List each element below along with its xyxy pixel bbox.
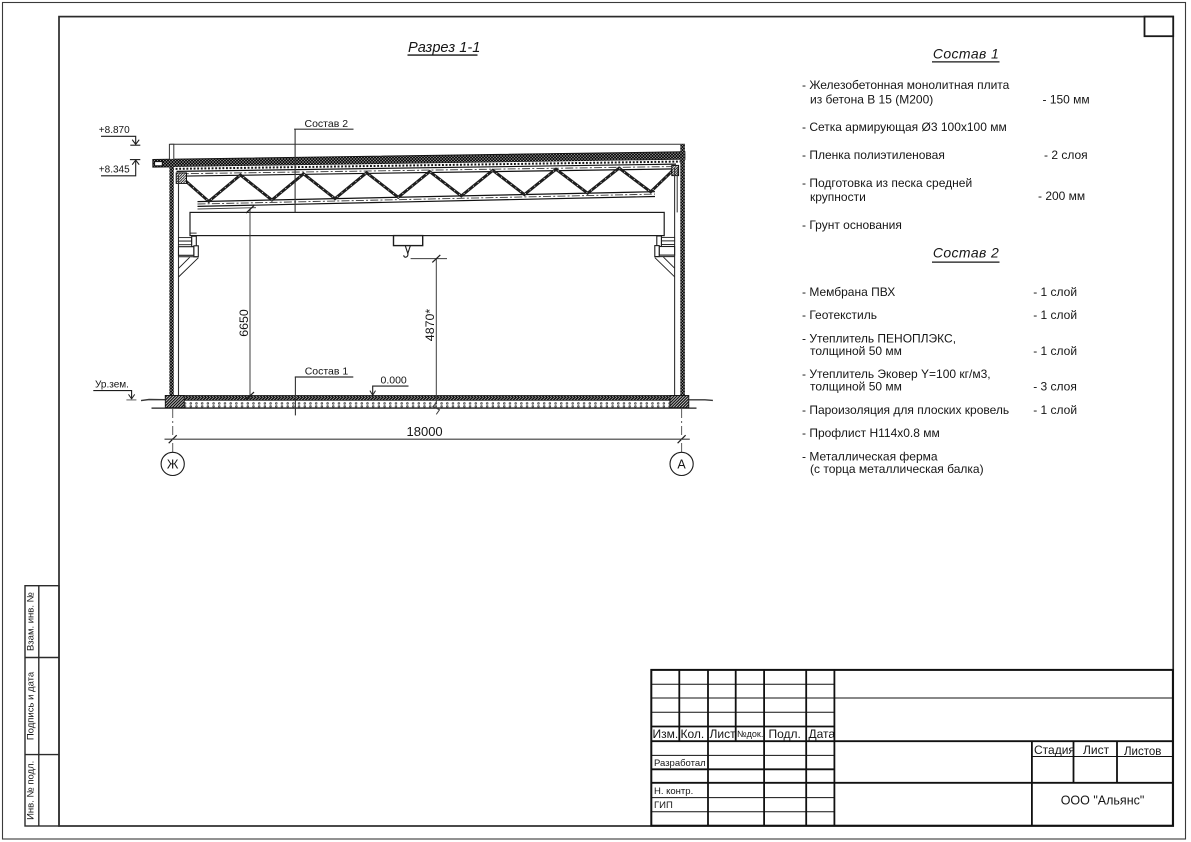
svg-text:- Железобетонная монолитная п: - Железобетонная монолитная плита	[802, 78, 1010, 92]
svg-text:- Пароизоляция для плоских кро: - Пароизоляция для плоских кровель	[802, 403, 1009, 417]
svg-text:- Подготовка из песка средней: - Подготовка из песка средней	[802, 176, 972, 190]
svg-text:- 3 слоя: - 3 слоя	[1033, 380, 1077, 394]
svg-text:Подпись и дата: Подпись и дата	[26, 671, 37, 740]
svg-text:Разработал: Разработал	[654, 758, 706, 769]
svg-text:Инв. № подл.: Инв. № подл.	[26, 761, 37, 820]
svg-text:- 200 мм: - 200 мм	[1038, 189, 1085, 203]
svg-text:Дата: Дата	[809, 727, 836, 741]
svg-text:18000: 18000	[407, 424, 443, 439]
svg-text:- Сетка армирующая Ø3 100х100: - Сетка армирующая Ø3 100х100 мм	[802, 120, 1007, 134]
svg-text:- Грунт основания: - Грунт основания	[802, 218, 902, 232]
svg-text:из бетона В 15 (М200): из бетона В 15 (М200)	[810, 93, 933, 107]
svg-text:- Геотекстиль: - Геотекстиль	[802, 308, 877, 322]
svg-text:ГИП: ГИП	[654, 800, 673, 811]
svg-text:Состав 2: Состав 2	[933, 245, 999, 261]
svg-text:- Мембрана ПВХ: - Мембрана ПВХ	[802, 285, 895, 299]
svg-text:6650: 6650	[237, 309, 251, 337]
svg-text:А: А	[677, 457, 686, 471]
svg-text:Разрез 1-1: Разрез 1-1	[408, 40, 480, 56]
svg-text:- 1 слой: - 1 слой	[1033, 308, 1077, 322]
svg-text:Н. контр.: Н. контр.	[654, 786, 693, 797]
svg-text:- 150 мм: - 150 мм	[1043, 93, 1090, 107]
svg-text:толщиной 50 мм: толщиной 50 мм	[810, 344, 902, 358]
svg-text:Состав 1: Состав 1	[933, 46, 999, 62]
svg-text:Листов: Листов	[1124, 746, 1161, 758]
svg-text:Подл.: Подл.	[769, 727, 801, 741]
svg-text:толщиной 50 мм: толщиной 50 мм	[810, 380, 902, 394]
svg-text:Ж: Ж	[167, 457, 179, 471]
svg-text:- 1 слой: - 1 слой	[1033, 344, 1077, 358]
svg-text:крупности: крупности	[810, 190, 866, 204]
svg-text:ООО "Альянс": ООО "Альянс"	[1061, 793, 1145, 807]
svg-text:Ур.зем.: Ур.зем.	[95, 379, 129, 390]
svg-text:- 2 слоя: - 2 слоя	[1044, 148, 1088, 162]
svg-text:+8.870: +8.870	[99, 125, 130, 136]
svg-text:№док.: №док.	[737, 729, 763, 739]
svg-text:Лист: Лист	[710, 727, 737, 741]
svg-text:- Профлист Н114х0.8 мм: - Профлист Н114х0.8 мм	[802, 426, 940, 440]
svg-text:Лист: Лист	[1083, 743, 1110, 757]
svg-text:- Пленка полиэтиленовая: - Пленка полиэтиленовая	[802, 148, 945, 162]
svg-text:Кол.: Кол.	[681, 727, 705, 741]
svg-text:Стадия: Стадия	[1034, 743, 1075, 757]
svg-text:- 1 слой: - 1 слой	[1033, 285, 1077, 299]
svg-text:Взам. инв. №: Взам. инв. №	[26, 592, 37, 651]
svg-text:Изм.: Изм.	[653, 727, 679, 741]
svg-text:Состав 2: Состав 2	[305, 118, 349, 130]
svg-text:- 1 слой: - 1 слой	[1033, 403, 1077, 417]
svg-text:4870*: 4870*	[423, 309, 437, 342]
svg-text:0.000: 0.000	[381, 374, 407, 386]
svg-text:+8.345: +8.345	[99, 165, 130, 176]
svg-text:(с торца металлическая балка): (с торца металлическая балка)	[810, 462, 984, 476]
svg-text:Состав 1: Состав 1	[305, 366, 349, 378]
